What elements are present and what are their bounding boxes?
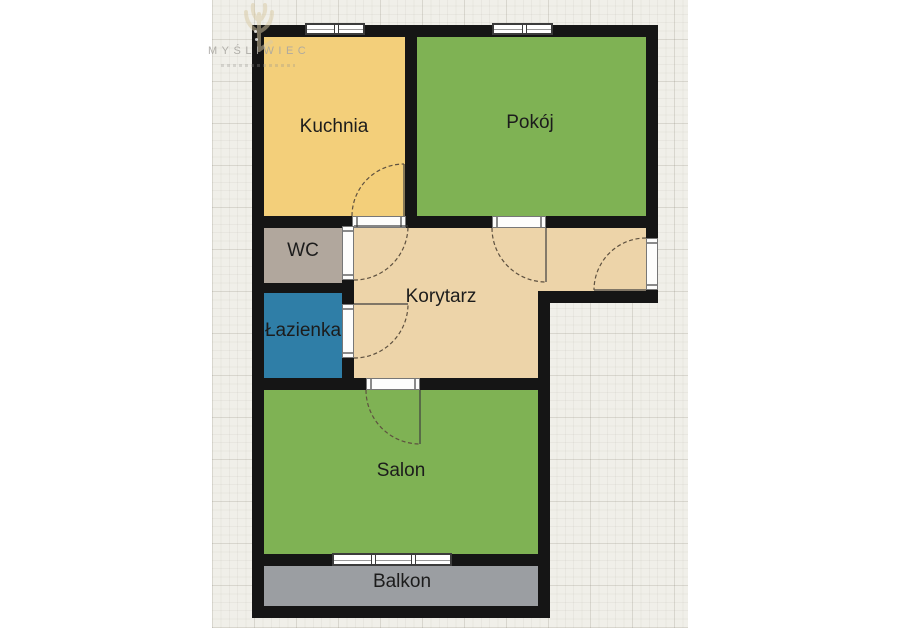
wall-under-kuchnia-pokoj: [264, 216, 646, 228]
kuchnia-window: [305, 23, 365, 35]
wall-bottom: [252, 606, 550, 618]
room-label-wc: WC: [287, 240, 319, 262]
room-label-pokoj: Pokój: [506, 112, 554, 134]
lazienka-door: [342, 304, 354, 358]
wall-right-lower: [538, 291, 550, 618]
watermark-tagline: [221, 64, 295, 67]
wall-left: [252, 25, 264, 618]
kuchnia-door: [352, 216, 406, 228]
pokoj-window: [492, 23, 553, 35]
salon-door: [366, 378, 420, 390]
entry-door: [646, 238, 658, 290]
wall-kuchnia-pokoj-divider: [405, 37, 417, 216]
room-label-salon: Salon: [377, 460, 426, 482]
wc-door: [342, 226, 354, 280]
balkon-window: [332, 553, 452, 566]
room-label-balkon: Balkon: [373, 571, 431, 593]
room-label-korytarz: Korytarz: [406, 286, 477, 308]
wall-wc-lazienka-divider: [264, 283, 342, 293]
wall-corner-speck: [254, 30, 257, 33]
floorplan-canvas: Kuchnia Pokój WC Łazienka Korytarz Salon…: [0, 0, 900, 628]
room-label-lazienka: Łazienka: [265, 320, 341, 342]
wall-corridor-bottom: [538, 291, 658, 303]
pokoj-door: [492, 216, 546, 228]
watermark-brand: MYŚLIWIEC: [208, 45, 310, 57]
wall-corner-speck: [255, 38, 258, 41]
room-label-kuchnia: Kuchnia: [300, 116, 369, 138]
